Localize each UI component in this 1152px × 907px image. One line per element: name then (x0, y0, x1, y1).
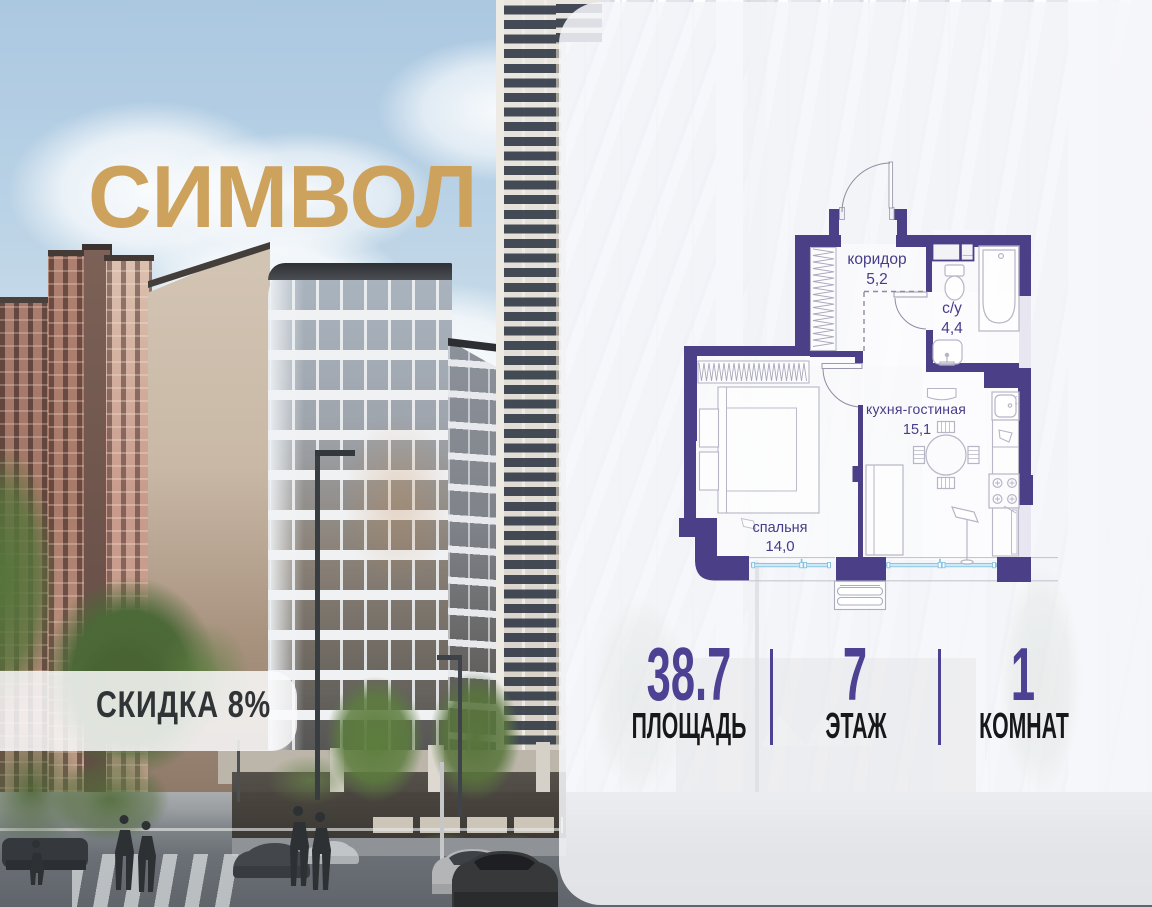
svg-text:14,0: 14,0 (765, 538, 794, 555)
svg-text:спальня: спальня (752, 520, 807, 536)
svg-text:кухня-гостиная: кухня-гостиная (866, 401, 966, 417)
svg-text:с/у: с/у (942, 300, 962, 317)
svg-text:5,2: 5,2 (866, 271, 888, 288)
svg-text:4,4: 4,4 (941, 320, 963, 337)
svg-text:15,1: 15,1 (903, 422, 931, 438)
svg-text:коридор: коридор (847, 251, 906, 268)
